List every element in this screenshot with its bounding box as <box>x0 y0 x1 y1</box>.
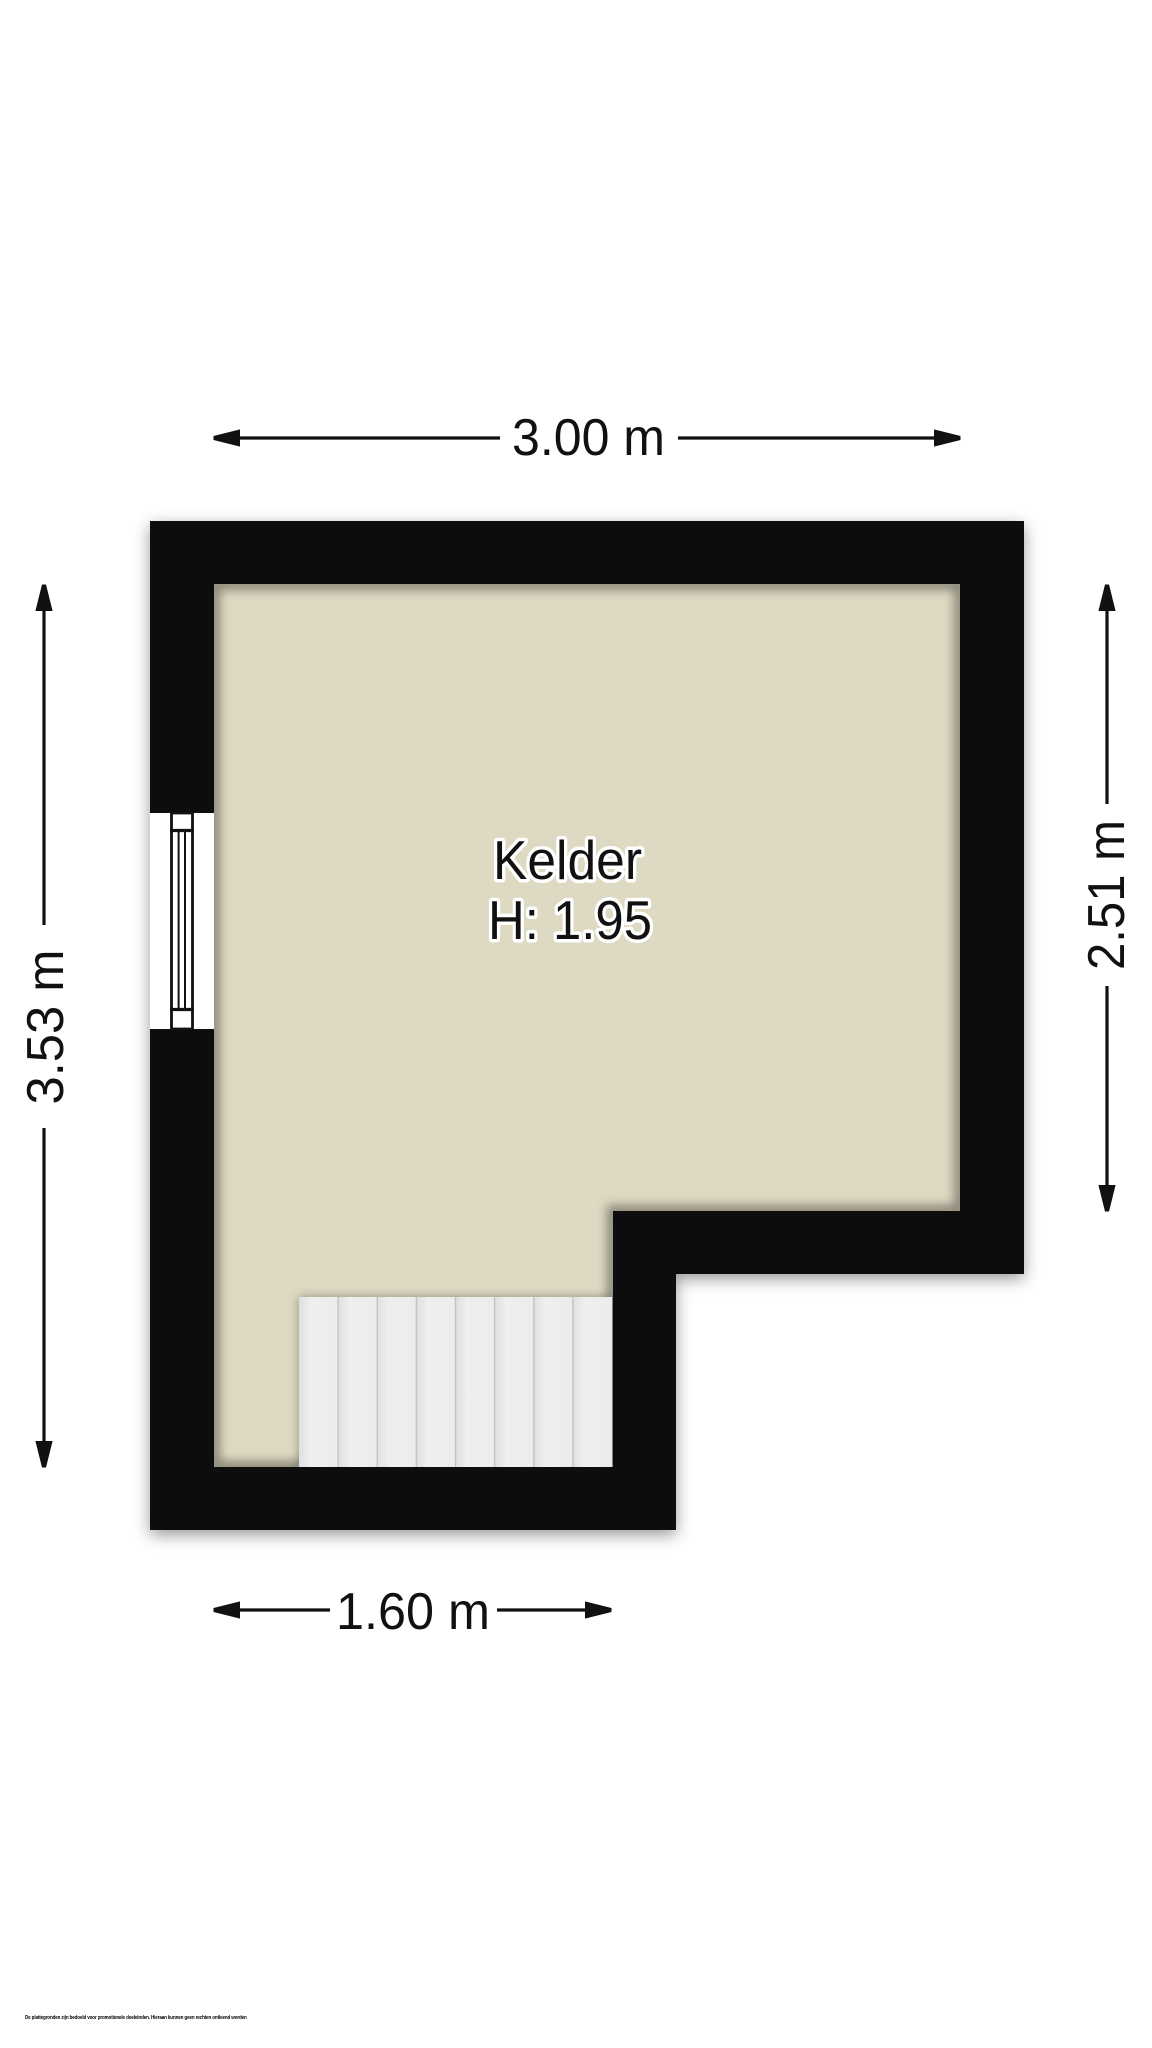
svg-text:3.53 m: 3.53 m <box>17 950 75 1105</box>
svg-text:H: 1.95: H: 1.95 <box>488 889 652 951</box>
svg-text:2.51 m: 2.51 m <box>1078 820 1136 970</box>
svg-text:1.60 m: 1.60 m <box>336 1583 490 1641</box>
svg-text:3.00 m: 3.00 m <box>512 409 665 467</box>
svg-text:Kelder: Kelder <box>493 829 642 891</box>
